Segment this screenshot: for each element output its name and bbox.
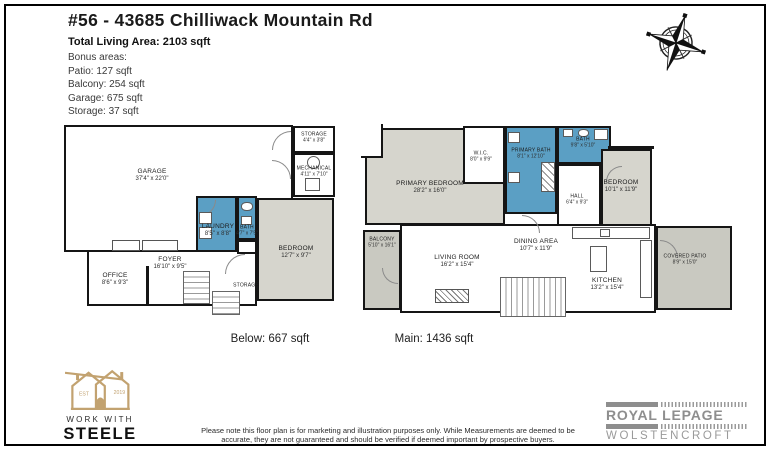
below-plan-caption: Below: 667 sqft bbox=[190, 333, 350, 345]
bonus-line: Storage: 37 sqft bbox=[68, 105, 145, 119]
kitchen-counter bbox=[572, 227, 650, 239]
sink-fixture bbox=[563, 129, 573, 137]
bedroom-main-label: BEDROOM 10'1" x 11'9" bbox=[604, 179, 639, 194]
garage-shelving bbox=[112, 240, 140, 251]
stairs-below-lower bbox=[212, 291, 240, 315]
kitchen-sink-fixture bbox=[600, 229, 610, 237]
stairs-main bbox=[500, 277, 566, 317]
wic-label: W.I.C. 8'0" x 9'9" bbox=[470, 152, 492, 163]
vanity-fixture bbox=[508, 132, 520, 143]
office-wall bbox=[146, 266, 149, 306]
steele-tagline: WORK WITH bbox=[56, 415, 144, 424]
vanity-fixture bbox=[508, 172, 520, 183]
bedroom-below-label: BEDROOM 12'7" x 9'7" bbox=[279, 245, 314, 260]
bath-below-label: BATH 4'7" x 7'5" bbox=[236, 226, 258, 237]
shower-fixture bbox=[541, 162, 555, 192]
dining-area-label: DINING AREA 10'7" x 11'9" bbox=[514, 238, 558, 253]
stairs-below-upper bbox=[183, 271, 210, 304]
kitchen-label: KITCHEN 13'2" x 15'4" bbox=[591, 277, 624, 292]
floorplan-flyer: #56 - 43685 Chilliwack Mountain Rd Total… bbox=[0, 0, 770, 450]
balcony-label: BALCONY 5'10" x 16'1" bbox=[368, 238, 395, 249]
under-stair-storage bbox=[435, 289, 469, 303]
mechanical-unit bbox=[305, 178, 320, 191]
svg-text:2019: 2019 bbox=[114, 390, 126, 396]
hall-label: HALL 6'4" x 9'3" bbox=[566, 195, 588, 206]
royal-lepage-logo: ROYAL LEPAGE WOLSTENCROFT bbox=[606, 401, 748, 443]
lepage-bar bbox=[606, 424, 748, 429]
laundry-label: LAUNDRY 8'5" x 8'8" bbox=[202, 223, 234, 238]
steele-name: STEELE bbox=[56, 425, 144, 444]
wall-segment bbox=[608, 146, 654, 149]
kitchen-island bbox=[590, 246, 607, 272]
storage-under-stairs-label: STORAGE bbox=[233, 283, 259, 289]
living-room-label: LIVING ROOM 16'2" x 15'4" bbox=[434, 254, 480, 269]
disclaimer-text: Please note this floor plan is for marke… bbox=[190, 426, 586, 444]
main-plan-caption: Main: 1436 sqft bbox=[354, 333, 514, 345]
compass-rose-icon bbox=[637, 4, 715, 82]
plan-notch bbox=[361, 124, 383, 158]
primary-bedroom-label: PRIMARY BEDROOM 28'2" x 16'0" bbox=[396, 180, 464, 195]
bonus-line: Balcony: 254 sqft bbox=[68, 78, 145, 92]
bonus-line: Garage: 675 sqft bbox=[68, 92, 145, 106]
garage-label: GARAGE 37'4" x 22'0" bbox=[136, 168, 169, 183]
mechanical-label: MECHANICAL 4'11" x 7'10" bbox=[297, 167, 332, 178]
tub-fixture bbox=[594, 129, 608, 140]
toilet-fixture bbox=[241, 202, 253, 211]
lepage-office: WOLSTENCROFT bbox=[606, 430, 748, 443]
lepage-brand: ROYAL LEPAGE bbox=[606, 408, 748, 423]
bonus-line: Patio: 127 sqft bbox=[68, 65, 145, 79]
office-label: OFFICE 8'6" x 9'3" bbox=[102, 272, 128, 287]
bonus-line: Bonus areas: bbox=[68, 51, 145, 65]
primary-bath-label: PRIMARY BATH 8'1" x 12'10" bbox=[511, 149, 550, 160]
work-with-steele-logo: EST 2019 WORK WITH STEELE bbox=[56, 365, 144, 444]
page-title: #56 - 43685 Chilliwack Mountain Rd bbox=[68, 10, 373, 31]
svg-text:EST: EST bbox=[79, 392, 90, 398]
bath-main-label: BATH 9'8" x 5'10" bbox=[571, 138, 596, 149]
covered-patio-label: COVERED PATIO 8'9" x 15'0" bbox=[664, 255, 707, 266]
door-arc bbox=[522, 215, 540, 233]
room-closet-below bbox=[237, 240, 257, 254]
steele-houses-icon: EST 2019 bbox=[65, 365, 135, 413]
garage-shelving bbox=[142, 240, 178, 251]
room-covered-patio bbox=[656, 226, 732, 310]
bonus-areas-list: Bonus areas: Patio: 127 sqft Balcony: 25… bbox=[68, 51, 145, 119]
storage-top-label: STORAGE 4'4" x 3'8" bbox=[301, 133, 327, 144]
kitchen-counter bbox=[640, 240, 652, 298]
total-living-area: Total Living Area: 2103 sqft bbox=[68, 36, 210, 48]
foyer-label: FOYER 16'10" x 9'5" bbox=[154, 256, 187, 271]
